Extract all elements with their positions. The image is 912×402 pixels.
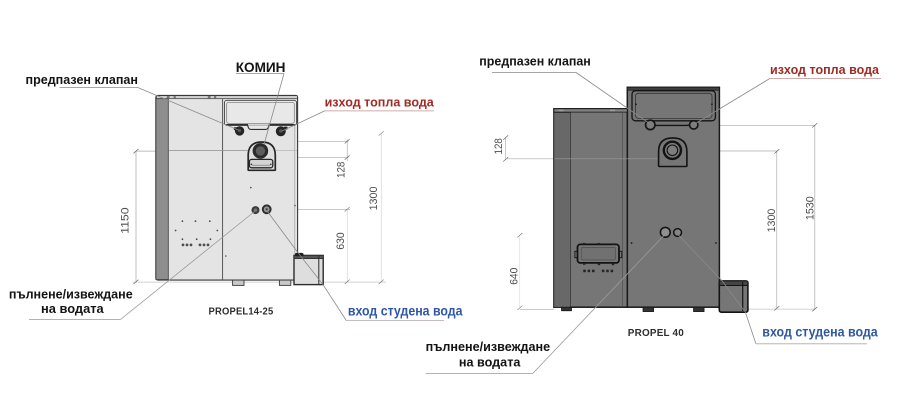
svg-text:предпазен клапан: предпазен клапан	[26, 72, 139, 87]
svg-text:1150: 1150	[119, 207, 131, 234]
svg-text:на водата: на водата	[459, 355, 521, 370]
svg-text:128: 128	[493, 138, 505, 154]
svg-text:изход топла вода: изход топла вода	[770, 63, 880, 77]
svg-text:PROPEL 40: PROPEL 40	[628, 328, 684, 339]
svg-text:пълнене/извеждане: пълнене/извеждане	[426, 339, 551, 354]
svg-text:предпазен клапан: предпазен клапан	[479, 54, 591, 69]
svg-text:1530: 1530	[805, 196, 817, 220]
svg-text:1300: 1300	[766, 209, 778, 233]
svg-text:640: 640	[509, 268, 521, 285]
svg-text:вход студена вода: вход студена вода	[762, 324, 878, 339]
svg-text:630: 630	[335, 232, 347, 249]
svg-text:пълнене/извеждане: пълнене/извеждане	[9, 287, 133, 302]
svg-text:на водата: на водата	[41, 301, 105, 316]
svg-text:КОМИН: КОМИН	[236, 60, 286, 75]
svg-text:1300: 1300	[368, 187, 380, 211]
svg-text:вход студена вода: вход студена вода	[348, 303, 463, 318]
svg-text:128: 128	[336, 162, 348, 178]
svg-text:PROPEL14-25: PROPEL14-25	[209, 307, 274, 318]
svg-text:изход топла вода: изход топла вода	[325, 96, 435, 110]
